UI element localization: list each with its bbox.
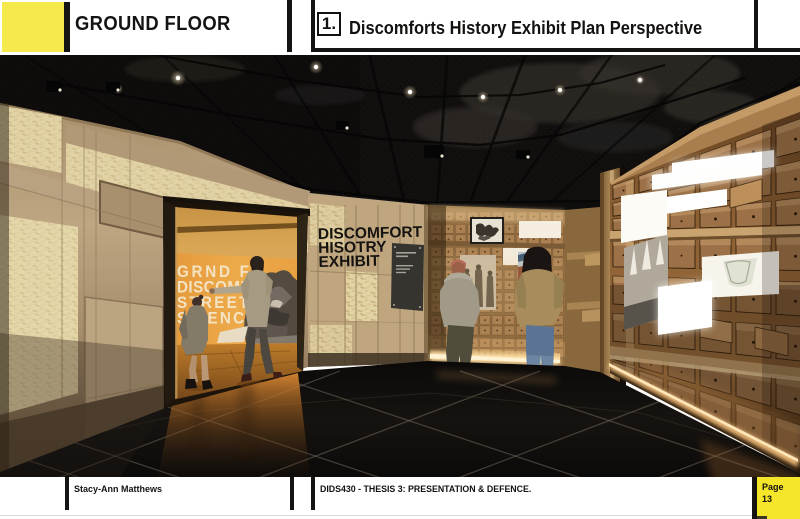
svg-text:EXHIBIT: EXHIBIT: [318, 253, 380, 271]
